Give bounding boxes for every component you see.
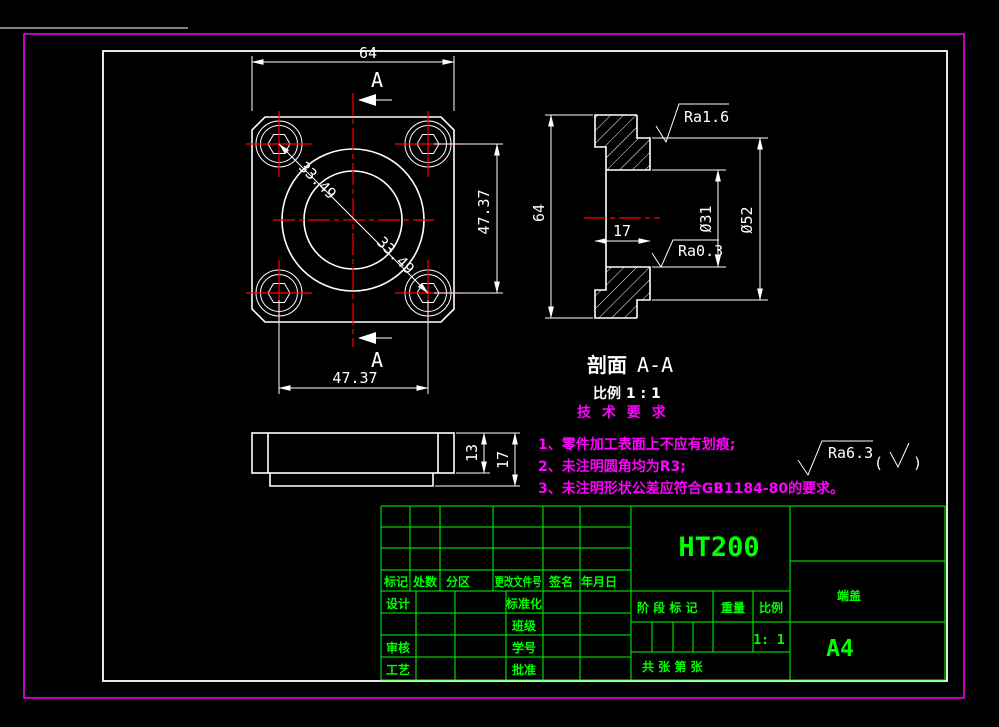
scale-label: 比例 — [759, 600, 783, 615]
col-mark: 标记 — [383, 574, 408, 589]
col-doc: 更改文件号 — [495, 574, 542, 589]
paren-close: ) — [913, 454, 922, 472]
weight-label: 重量 — [721, 600, 745, 615]
scale-note: 比例 1 : 1 — [593, 385, 661, 402]
sheets-label: 共 张 第 张 — [642, 659, 704, 674]
dim-depth-text: 17 — [613, 222, 631, 240]
stage-label: 阶 段 标 记 — [637, 600, 698, 615]
row-class: 班级 — [512, 618, 536, 633]
dim-top-text: 64 — [359, 44, 377, 62]
dim-height-text: 64 — [530, 204, 548, 222]
col-date: 年月日 — [581, 574, 617, 589]
ra-top-text: Ra1.6 — [684, 108, 729, 126]
sheet-size: A4 — [826, 636, 854, 662]
section-title: 剖面 — [587, 353, 627, 377]
tech-item-2: 2、未注明圆角均为R3; — [538, 458, 686, 475]
row-design: 设计 — [386, 596, 410, 611]
row-process: 工艺 — [386, 662, 410, 677]
scale-value: 1: 1 — [753, 633, 784, 648]
ra-general-text: Ra6.3 — [828, 444, 873, 462]
row-check: 审核 — [386, 640, 410, 655]
drawing-svg: 33.49 33.49 A A 64 47.37 47.37 — [0, 0, 999, 727]
background — [0, 0, 999, 727]
section-letter-top: A — [371, 68, 383, 92]
dim-plate-text: 13 — [463, 444, 481, 462]
paren-open: ( — [874, 454, 883, 472]
dim-total-text: 17 — [494, 451, 512, 469]
row-standard: 标准化 — [505, 596, 542, 611]
dim-boss-text: Ø52 — [738, 206, 756, 233]
row-number: 学号 — [512, 640, 536, 655]
material: HT200 — [678, 532, 759, 563]
tech-item-1: 1、零件加工表面上不应有划痕; — [538, 436, 735, 453]
part-name: 端盖 — [837, 588, 861, 603]
col-count: 处数 — [412, 574, 438, 589]
dim-bottom-text: 47.37 — [332, 369, 377, 387]
row-approve: 批准 — [512, 662, 536, 677]
dim-bore-text: Ø31 — [697, 205, 715, 232]
col-sign: 签名 — [548, 574, 573, 589]
dim-right-text: 47.37 — [475, 189, 493, 234]
section-title-suffix: A-A — [637, 353, 673, 377]
ra-bore-text: Ra0.3 — [678, 242, 723, 260]
tech-heading: 技 术 要 求 — [577, 404, 669, 421]
cad-drawing-sheet: 33.49 33.49 A A 64 47.37 47.37 — [0, 0, 999, 727]
tech-item-3: 3、未注明形状公差应符合GB1184-80的要求。 — [538, 480, 844, 497]
col-zone: 分区 — [446, 574, 470, 589]
